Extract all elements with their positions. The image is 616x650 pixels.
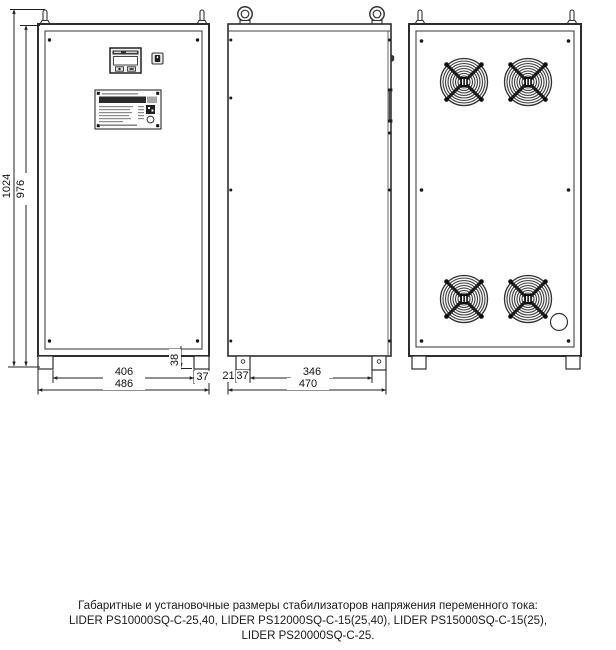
side-cabinet-outline <box>228 24 391 356</box>
dim-label-front-foot-width: 37 <box>194 371 211 383</box>
lifting-eye-icon <box>415 10 425 24</box>
rear-view <box>409 10 581 369</box>
front-foot <box>194 356 209 369</box>
cable-gland-icon <box>551 314 568 331</box>
dimension-drawing <box>0 0 616 650</box>
caption-line-1: Габаритные и установочные размеры стабил… <box>0 599 616 614</box>
technical-drawing-page: 1024 976 38 406 486 37 21 37 346 470 Габ… <box>0 0 616 650</box>
caption-line-3: LIDER PS20000SQ-C-25. <box>0 629 616 644</box>
control-display <box>110 48 141 73</box>
fan-grille-icon <box>505 276 552 323</box>
dim-label-foot-height: 38 <box>169 349 181 371</box>
nameplate <box>95 90 161 129</box>
lifting-eye-icon <box>40 10 50 24</box>
dim-label-side-foot-width: 37 <box>236 370 249 382</box>
dim-label-side-overall-depth: 470 <box>287 378 329 390</box>
lifting-ring-icon <box>370 7 384 24</box>
lifting-ring-icon <box>238 7 252 24</box>
dim-label-body-height: 976 <box>15 173 27 205</box>
dim-label-side-feet-span: 346 <box>291 366 333 378</box>
front-foot <box>38 356 53 369</box>
fan-grille-icon <box>505 59 552 106</box>
dim-label-front-feet-span: 406 <box>103 366 145 378</box>
front-door-outline <box>45 31 202 349</box>
dim-label-front-overall-width: 486 <box>103 378 145 390</box>
side-view <box>228 7 394 370</box>
dim-label-total-height: 1024 <box>1 163 13 209</box>
lifting-eye-icon <box>567 10 577 24</box>
hinge-icon <box>391 54 394 62</box>
rear-foot <box>566 356 580 369</box>
power-switch <box>152 53 163 64</box>
lifting-eye-icon <box>197 10 207 24</box>
qr-code-icon <box>146 105 155 114</box>
rear-foot <box>412 356 426 369</box>
front-view <box>38 10 209 369</box>
caption-line-2: LIDER PS10000SQ-C-25,40, LIDER PS12000SQ… <box>0 614 616 629</box>
fan-grille-icon <box>441 59 488 106</box>
fan-grille-icon <box>441 276 488 323</box>
dim-label-side-edge-offset: 21 <box>222 370 235 382</box>
